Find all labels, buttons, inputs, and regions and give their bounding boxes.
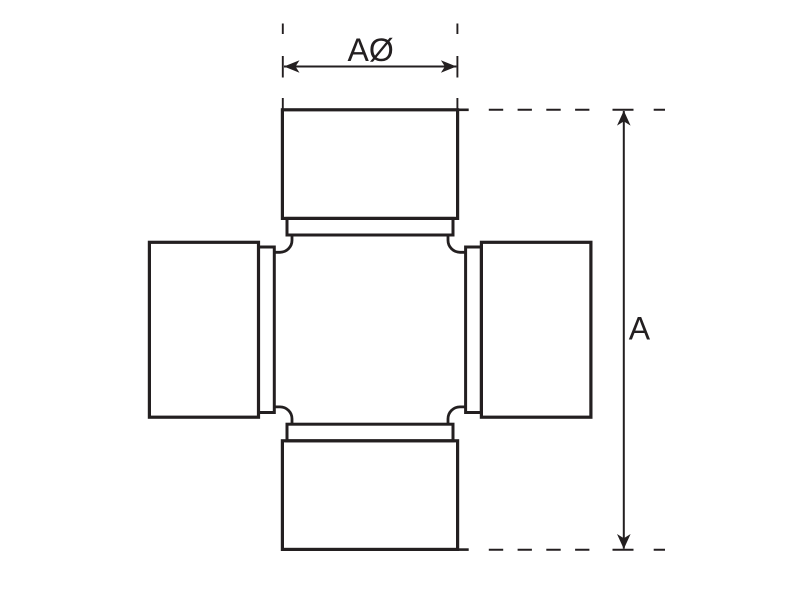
svg-text:AØ: AØ — [347, 32, 393, 68]
svg-text:A: A — [629, 310, 651, 346]
